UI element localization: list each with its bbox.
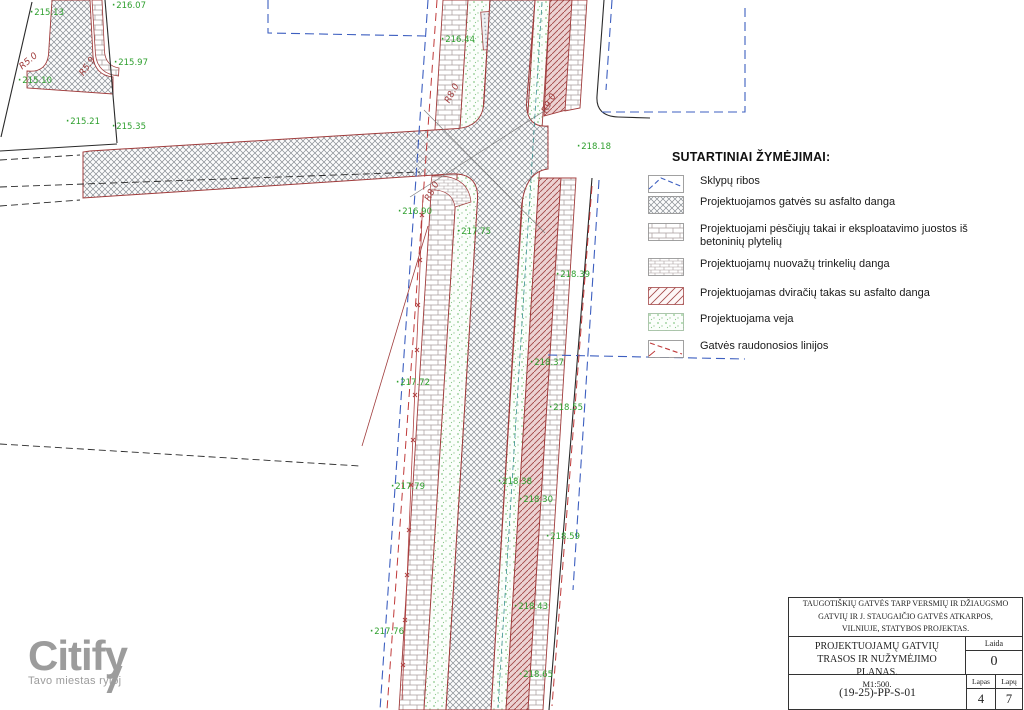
legend-label: Projektuojami pėsčiųjų takai ir eksploat… — [700, 223, 1000, 249]
red-lines-swatch-icon — [648, 340, 684, 358]
lawn-swatch-icon — [648, 313, 684, 331]
legend-item-driveway-pavers: Projektuojamų nuovažų trinkelių danga — [648, 258, 1000, 276]
legend-item-parcel-boundary: Sklypų ribos — [648, 175, 1000, 193]
title-block: TAUGOTIŠKIŲ GATVĖS TARP VERSMIŲ IR DŽIAU… — [788, 597, 1023, 710]
lapu-value: 7 — [996, 689, 1022, 710]
elevation-label: 215.10 — [18, 76, 52, 86]
legend-title: SUTARTINIAI ŽYMĖJIMAI: — [672, 150, 830, 164]
elevation-label: 217.72 — [396, 378, 430, 388]
legend-item-lawn: Projektuojama veja — [648, 313, 1000, 331]
elevation-label: 217.79 — [391, 482, 425, 492]
elevation-label: 218.65 — [519, 670, 553, 680]
legend-item-concrete-tiles: Projektuojami pėsčiųjų takai ir eksploat… — [648, 223, 1000, 249]
lapas-header: Lapas — [967, 675, 995, 689]
legend-label: Gatvės raudonosios linijos — [700, 340, 1000, 353]
legend-label: Projektuojamas dviračių takas su asfalto… — [700, 287, 1000, 300]
lapas-value: 4 — [967, 689, 995, 710]
document-number: (19-25)-PP-S-01 — [789, 675, 967, 710]
elevation-label: 218.55 — [549, 403, 583, 413]
elevation-label: 215.35 — [112, 122, 146, 132]
legend: SUTARTINIAI ŽYMĖJIMAI: Sklypų ribos Proj… — [648, 150, 1020, 375]
logo-wordmark: Citify — [28, 634, 127, 678]
elevation-label: 218.18 — [577, 142, 611, 152]
laida-value: 0 — [966, 651, 1022, 674]
radius-label: R9.0 — [540, 92, 558, 115]
project-name: TAUGOTIŠKIŲ GATVĖS TARP VERSMIŲ IR DŽIAU… — [789, 598, 1022, 637]
elevation-label: 218.30 — [519, 495, 553, 505]
site-plan-page: 215.13216.07215.97215.10215.21215.35216.… — [0, 0, 1024, 710]
radius-label: R5.0 — [18, 51, 40, 72]
parcel-boundary-swatch-icon — [648, 175, 684, 193]
legend-item-bike-path: Projektuojamas dviračių takas su asfalto… — [648, 287, 1000, 305]
elevation-label: 216.07 — [112, 1, 146, 11]
elevation-label: 217.75 — [457, 227, 491, 237]
elevation-label: 215.13 — [30, 8, 64, 18]
legend-label: Sklypų ribos — [700, 175, 1000, 188]
elevation-label: 218.38 — [498, 477, 532, 487]
elevation-label: 218.59 — [546, 532, 580, 542]
elevation-label: 215.21 — [66, 117, 100, 127]
citify-logo: Citify Tavo miestas rytoj — [28, 634, 127, 687]
legend-item-red-lines: Gatvės raudonosios linijos — [648, 340, 1000, 358]
elevation-label: 215.97 — [114, 58, 148, 68]
radius-label: R5.9 — [78, 55, 98, 78]
laida-header: Laida — [966, 637, 1022, 651]
legend-label: Projektuojamų nuovažų trinkelių danga — [700, 258, 1000, 271]
concrete-tiles-swatch-icon — [648, 223, 684, 241]
bike-path-swatch-icon — [648, 287, 684, 305]
pavers-swatch-icon — [648, 258, 684, 276]
drawing-title: PROJEKTUOJAMŲ GATVIŲ TRASOS IR NUŽYMĖJIM… — [789, 640, 965, 679]
legend-label: Projektuojama veja — [700, 313, 1000, 326]
elevation-label: 218.43 — [514, 602, 548, 612]
legend-item-asphalt-street: Projektuojamos gatvės su asfalto danga — [648, 196, 1000, 214]
elevation-label: 216.90 — [398, 207, 432, 217]
elevation-label: 217.76 — [370, 627, 404, 637]
lapu-header: Lapų — [996, 675, 1022, 689]
elevation-label: 216.44 — [441, 35, 475, 45]
asphalt-swatch-icon — [648, 196, 684, 214]
legend-label: Projektuojamos gatvės su asfalto danga — [700, 196, 1000, 209]
elevation-label: 218.39 — [556, 270, 590, 280]
elevation-label: 218.37 — [530, 358, 564, 368]
radius-label: R8.0 — [423, 180, 441, 203]
radius-label: R8.0 — [443, 82, 461, 105]
